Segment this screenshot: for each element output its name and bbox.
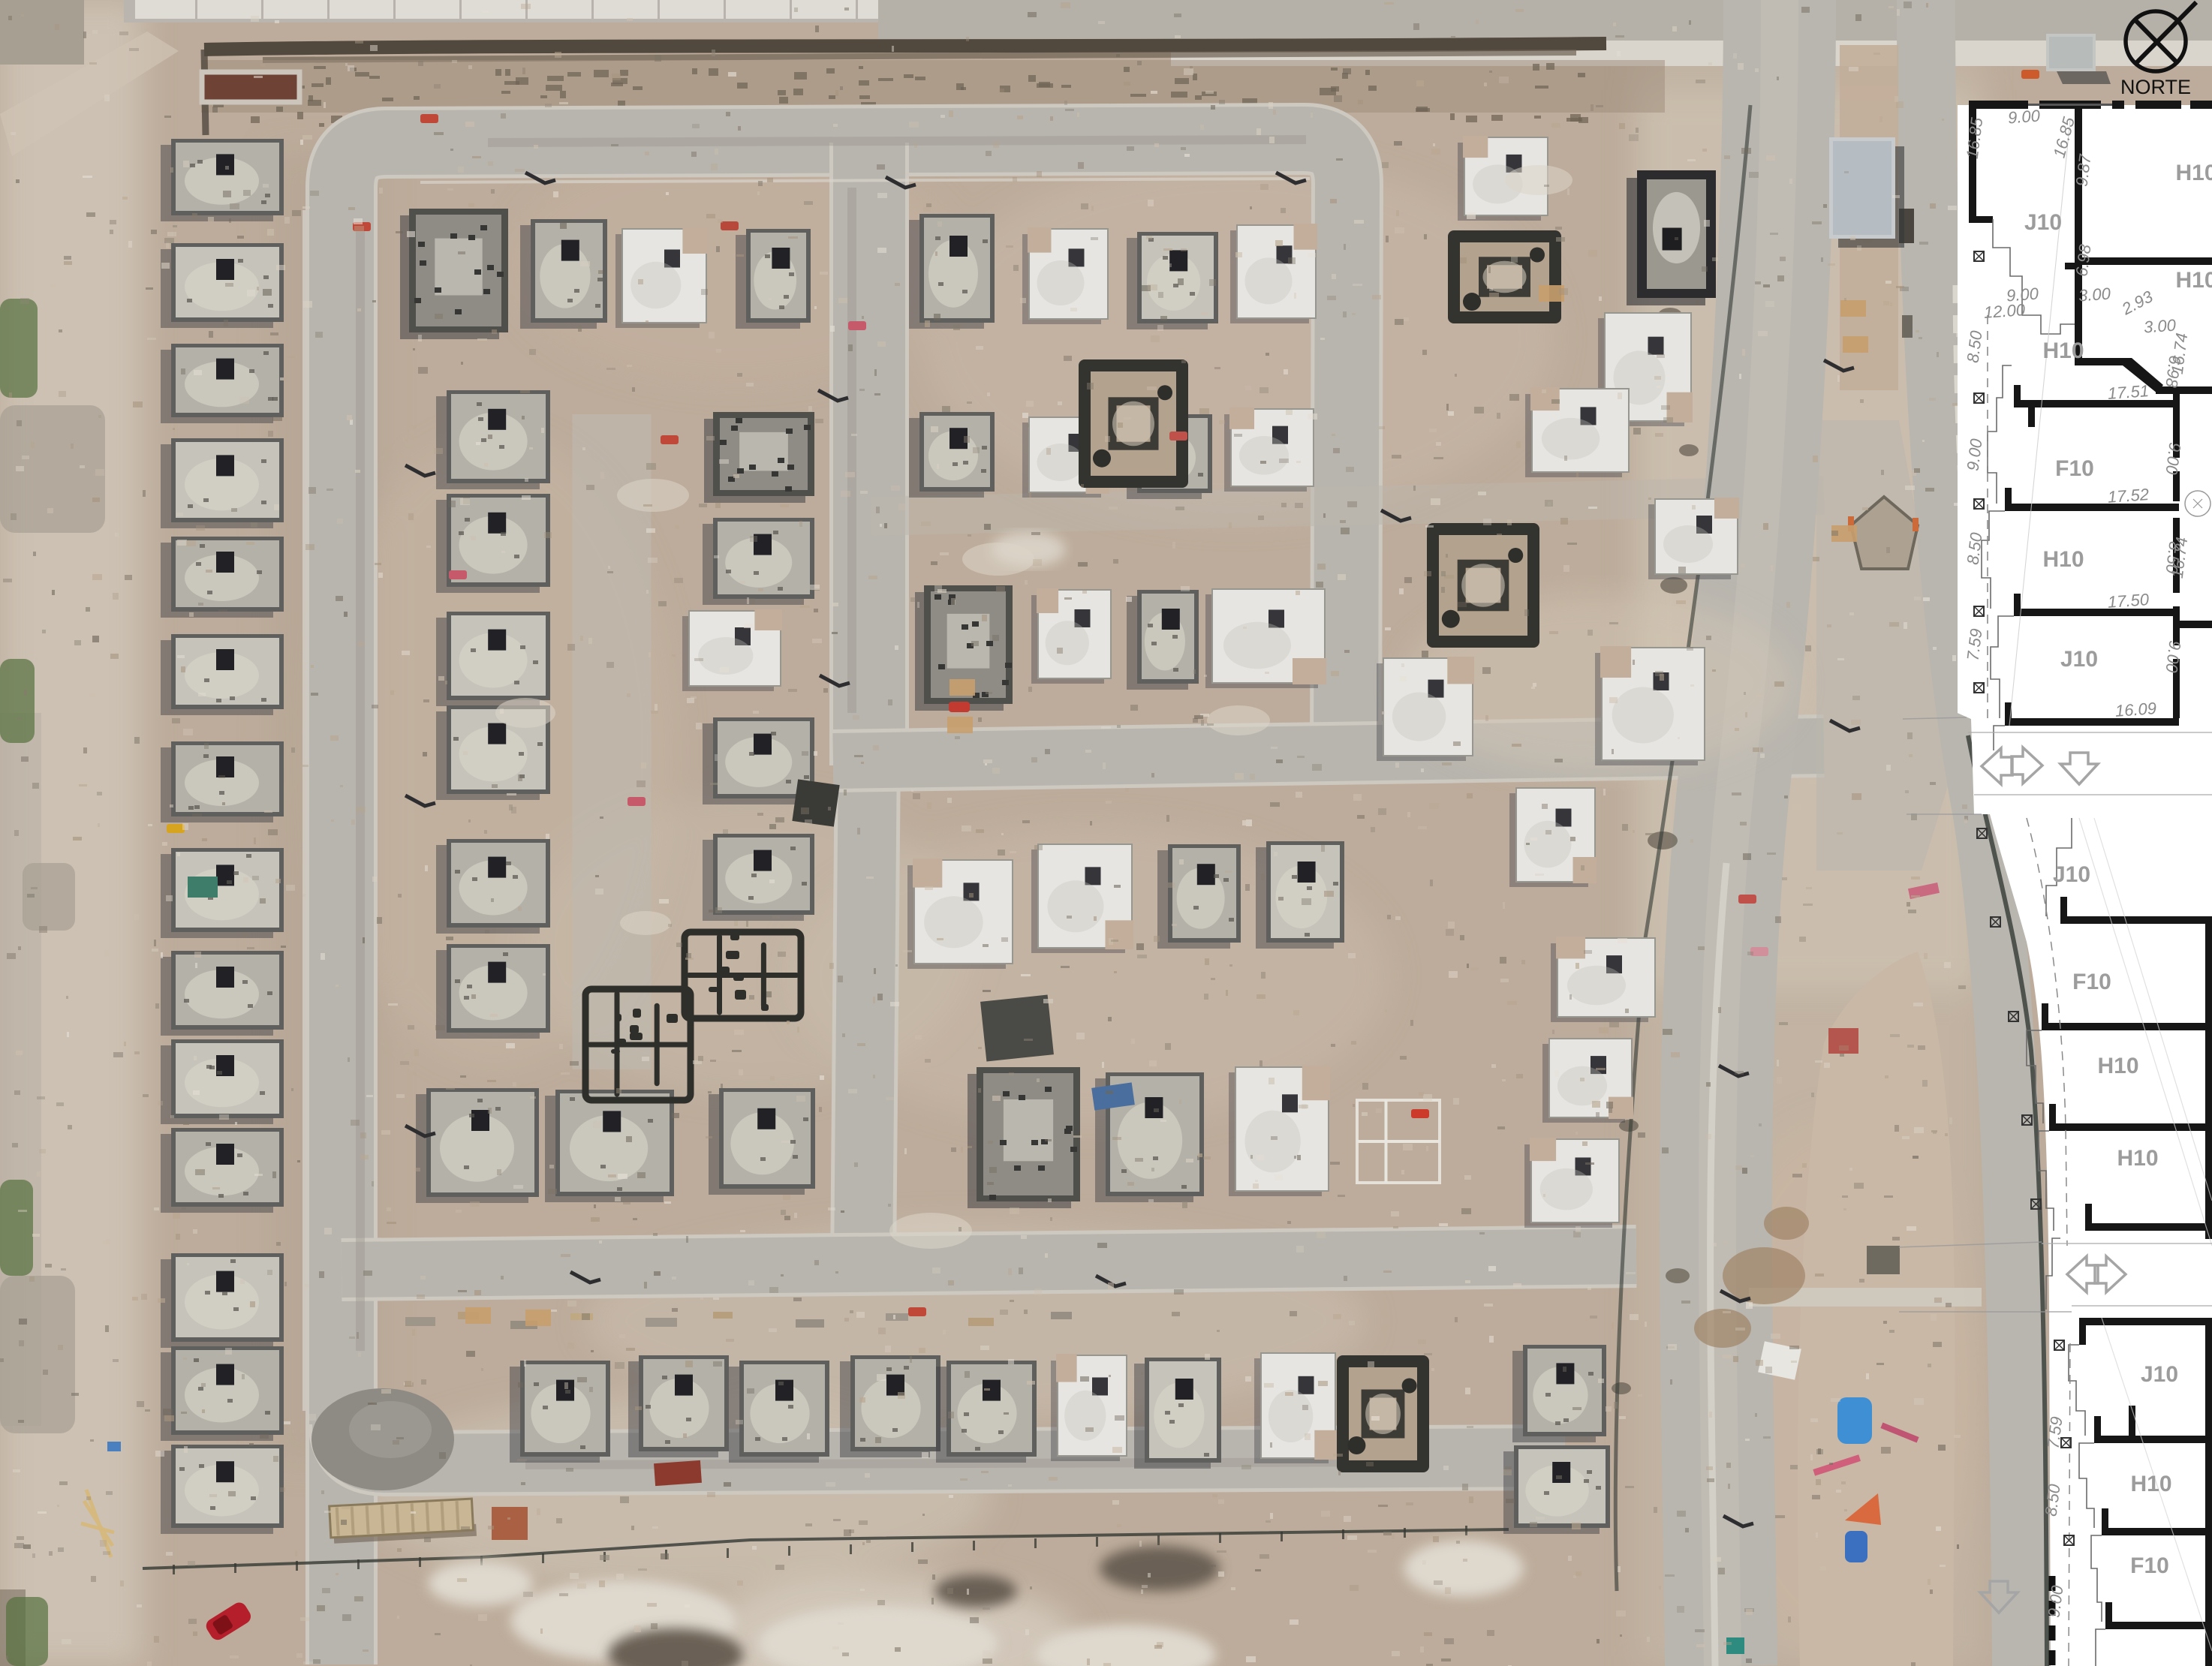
svg-text:H10: H10	[2130, 1472, 2171, 1496]
svg-text:6.98: 6.98	[2072, 243, 2095, 278]
svg-text:9.00: 9.00	[1964, 438, 1986, 472]
svg-text:8.50: 8.50	[2042, 1483, 2064, 1517]
svg-text:8.50: 8.50	[1964, 329, 1986, 364]
svg-text:J10: J10	[2024, 210, 2062, 235]
svg-text:J10: J10	[2060, 647, 2098, 672]
svg-text:J10: J10	[2141, 1362, 2178, 1387]
svg-text:9.00: 9.00	[2162, 639, 2184, 674]
svg-text:H10: H10	[2042, 338, 2084, 363]
svg-text:7.59: 7.59	[1964, 627, 1986, 662]
svg-text:9.00: 9.00	[2045, 1584, 2067, 1619]
svg-text:17.52: 17.52	[2107, 485, 2150, 507]
svg-text:9.00: 9.00	[2007, 107, 2041, 128]
svg-text:H10: H10	[2175, 268, 2212, 293]
svg-text:16.09: 16.09	[2114, 699, 2157, 720]
svg-text:J10: J10	[2053, 862, 2090, 887]
svg-text:F10: F10	[2130, 1553, 2169, 1578]
svg-text:17.50: 17.50	[2107, 590, 2150, 612]
svg-text:F10: F10	[2072, 970, 2111, 994]
svg-text:7.59: 7.59	[2044, 1415, 2066, 1450]
svg-text:F10: F10	[2055, 456, 2094, 481]
svg-text:12.00: 12.00	[1983, 300, 2026, 322]
svg-text:17.51: 17.51	[2107, 381, 2150, 403]
svg-text:6.98: 6.98	[2162, 354, 2184, 389]
svg-text:H10: H10	[2117, 1146, 2158, 1171]
svg-text:3.00: 3.00	[2078, 284, 2111, 305]
svg-text:9.87: 9.87	[2072, 153, 2095, 188]
svg-text:8.50: 8.50	[1964, 531, 1986, 566]
svg-text:H10: H10	[2175, 161, 2212, 185]
svg-text:NORTE: NORTE	[2120, 76, 2191, 98]
svg-text:H10: H10	[2097, 1054, 2138, 1078]
svg-text:8.50: 8.50	[2162, 540, 2184, 575]
svg-text:9.00: 9.00	[2162, 441, 2184, 476]
svg-text:H10: H10	[2042, 547, 2084, 572]
